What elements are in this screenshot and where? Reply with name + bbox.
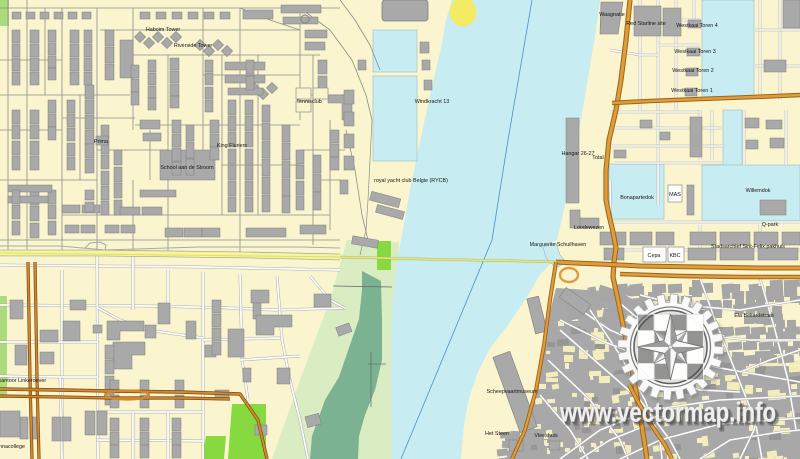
svg-text:Scheepvaartmuseum: Scheepvaartmuseum — [487, 389, 538, 395]
svg-text:Stadsarchief Sint-Felix pakhui: Stadsarchief Sint-Felix pakhuis — [711, 244, 785, 250]
svg-text:MAS: MAS — [669, 192, 681, 198]
svg-text:Vleeshuis: Vleeshuis — [534, 433, 558, 439]
svg-text:Bonapartedok: Bonapartedok — [620, 195, 654, 201]
svg-text:Red Starline site: Red Starline site — [626, 21, 666, 27]
svg-text:Windkracht 13: Windkracht 13 — [415, 99, 449, 105]
svg-text:Marguerite Schuilhaven: Marguerite Schuilhaven — [530, 242, 587, 248]
svg-text:Tennisclub: Tennisclub — [296, 99, 321, 105]
svg-text:Willemdok: Willemdok — [746, 188, 771, 194]
svg-text:Waagnatie: Waagnatie — [599, 12, 625, 18]
svg-text:Total: Total — [592, 155, 603, 161]
svg-text:royal yacht club Belgie (RYCB): royal yacht club Belgie (RYCB) — [374, 178, 448, 184]
svg-text:Westkaai Toren 4: Westkaai Toren 4 — [676, 23, 717, 29]
svg-text:Q-park: Q-park — [762, 222, 779, 228]
svg-text:Cepa: Cepa — [648, 253, 661, 259]
svg-text:Ela Beliardstraat: Ela Beliardstraat — [734, 313, 774, 319]
svg-text:Westkaai Toren 1: Westkaai Toren 1 — [671, 88, 712, 94]
svg-text:skantoor Linkeroever: skantoor Linkeroever — [0, 378, 46, 384]
svg-text:nnacollege: nnacollege — [0, 444, 25, 450]
svg-text:School aan de Stroom: School aan de Stroom — [160, 165, 214, 171]
svg-text:Westkaai Toren 3: Westkaai Toren 3 — [674, 49, 715, 55]
svg-text:www.vectormap.info: www.vectormap.info — [559, 397, 776, 428]
svg-text:Loodswezen: Loodswezen — [574, 225, 604, 231]
svg-text:Haboim Tower: Haboim Tower — [146, 27, 181, 33]
svg-text:Hangar 26-27: Hangar 26-27 — [562, 151, 595, 157]
svg-text:Het Steen: Het Steen — [485, 431, 509, 437]
svg-text:Westkaai Toren 2: Westkaai Toren 2 — [672, 68, 713, 74]
svg-text:Riverside Tower: Riverside Tower — [174, 43, 212, 49]
svg-text:Prima: Prima — [94, 139, 108, 145]
svg-text:KBC: KBC — [669, 253, 680, 259]
svg-text:King Fluriers: King Fluriers — [217, 143, 248, 149]
